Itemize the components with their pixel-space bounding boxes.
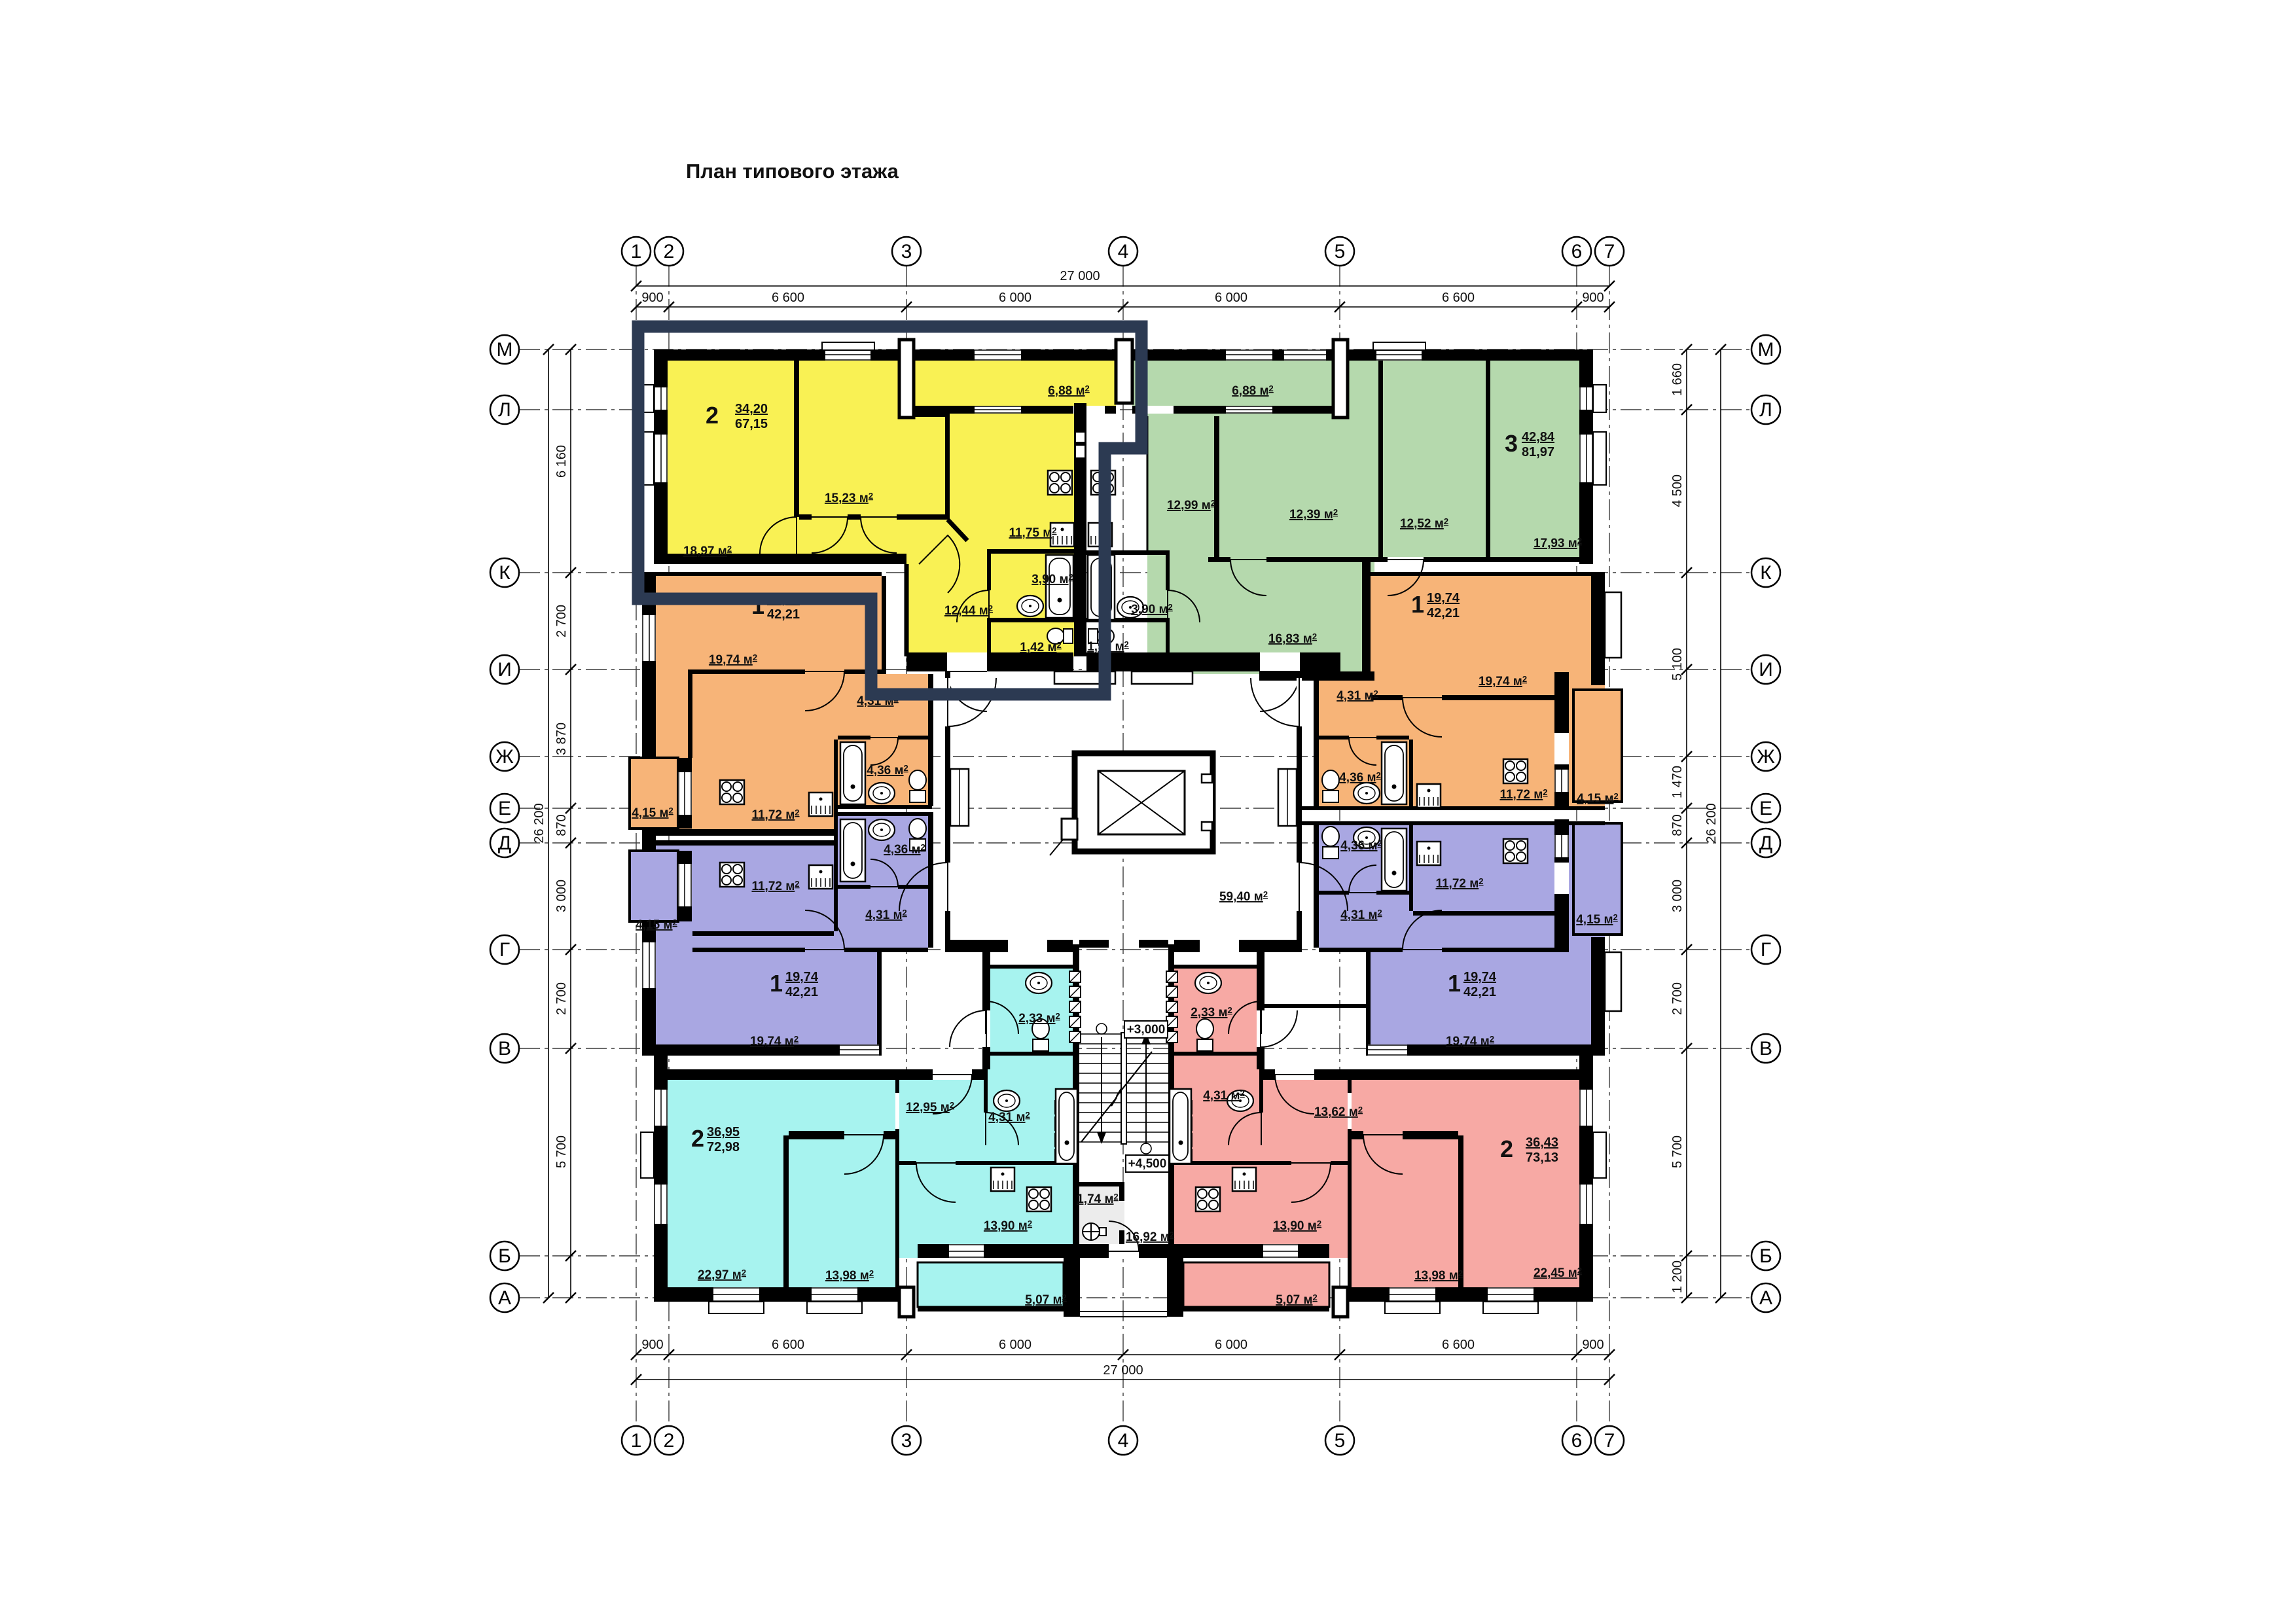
svg-text:Е: Е (1759, 798, 1772, 819)
svg-text:Г: Г (1761, 939, 1771, 961)
svg-text:4,31 м2: 4,31 м2 (865, 908, 907, 922)
svg-text:Д: Д (498, 832, 511, 854)
svg-text:5 700: 5 700 (1670, 1135, 1685, 1168)
svg-text:900: 900 (641, 1338, 663, 1352)
svg-text:2,33 м2: 2,33 м2 (1191, 1005, 1232, 1020)
svg-text:7: 7 (1604, 241, 1615, 262)
svg-text:6 000: 6 000 (999, 1338, 1031, 1352)
svg-text:3 000: 3 000 (554, 880, 569, 912)
svg-text:6 000: 6 000 (999, 291, 1031, 305)
svg-text:И: И (1759, 659, 1773, 681)
svg-text:1: 1 (770, 970, 783, 997)
svg-text:59,40 м2: 59,40 м2 (1219, 889, 1268, 904)
svg-text:19,74: 19,74 (1463, 970, 1497, 984)
svg-text:17,93 м2: 17,93 м2 (1534, 536, 1582, 550)
svg-text:6: 6 (1571, 241, 1583, 262)
svg-text:В: В (1759, 1038, 1772, 1060)
svg-text:Л: Л (498, 399, 511, 421)
svg-text:13,62 м2: 13,62 м2 (1314, 1105, 1363, 1119)
svg-text:27 000: 27 000 (1103, 1363, 1143, 1378)
svg-text:3 870: 3 870 (554, 722, 569, 755)
svg-text:Д: Д (1759, 832, 1772, 854)
svg-text:3: 3 (1505, 430, 1518, 457)
svg-text:34,20: 34,20 (735, 402, 768, 416)
svg-text:13,98 м2: 13,98 м2 (825, 1268, 874, 1283)
svg-text:2: 2 (664, 241, 675, 262)
svg-text:4,36 м2: 4,36 м2 (1340, 838, 1382, 853)
svg-text:12,95 м2: 12,95 м2 (906, 1100, 954, 1115)
svg-text:Л: Л (1759, 399, 1772, 421)
svg-text:900: 900 (1582, 1338, 1604, 1352)
svg-text:19,74 м2: 19,74 м2 (1446, 1034, 1494, 1048)
svg-text:Б: Б (1759, 1245, 1772, 1267)
svg-text:М: М (1758, 339, 1774, 361)
svg-text:2 700: 2 700 (554, 605, 569, 637)
svg-text:26 200: 26 200 (1704, 803, 1719, 843)
svg-text:2,33 м2: 2,33 м2 (1018, 1011, 1060, 1026)
svg-text:1: 1 (1411, 591, 1424, 618)
svg-text:42,21: 42,21 (785, 985, 818, 999)
svg-text:А: А (498, 1287, 511, 1309)
svg-text:16,92 м2: 16,92 м2 (1126, 1230, 1174, 1244)
svg-text:3,90 м2: 3,90 м2 (1131, 602, 1173, 616)
svg-text:42,84: 42,84 (1522, 430, 1555, 444)
svg-text:19,74 м2: 19,74 м2 (1479, 674, 1527, 688)
svg-text:Ж: Ж (1757, 746, 1775, 768)
svg-text:К: К (1760, 562, 1772, 584)
svg-text:12,52 м2: 12,52 м2 (1400, 516, 1448, 531)
svg-text:4,31 м2: 4,31 м2 (988, 1110, 1030, 1124)
svg-text:6 600: 6 600 (772, 291, 804, 305)
svg-text:13,90 м2: 13,90 м2 (1273, 1219, 1321, 1233)
svg-text:4,31 м2: 4,31 м2 (1203, 1088, 1245, 1103)
svg-text:6,88 м2: 6,88 м2 (1048, 383, 1090, 398)
svg-text:2: 2 (1500, 1135, 1513, 1162)
svg-text:11,72 м2: 11,72 м2 (1435, 876, 1483, 891)
svg-text:4,15 м2: 4,15 м2 (1576, 912, 1618, 927)
svg-text:19,74: 19,74 (1427, 591, 1460, 605)
svg-text:900: 900 (1582, 291, 1604, 305)
svg-text:3 000: 3 000 (1670, 880, 1685, 912)
svg-text:К: К (499, 562, 511, 584)
svg-text:11,72 м2: 11,72 м2 (751, 879, 799, 893)
svg-text:2: 2 (691, 1125, 704, 1152)
svg-text:6 160: 6 160 (554, 445, 569, 478)
svg-text:2: 2 (664, 1430, 675, 1452)
svg-text:1: 1 (631, 1430, 642, 1452)
svg-text:36,95: 36,95 (707, 1125, 740, 1139)
svg-text:42,21: 42,21 (1463, 985, 1496, 999)
svg-text:А: А (1759, 1287, 1772, 1309)
svg-text:Г: Г (499, 939, 510, 961)
svg-text:1 660: 1 660 (1670, 363, 1685, 396)
svg-text:Б: Б (498, 1245, 511, 1267)
svg-text:19,74: 19,74 (785, 970, 819, 984)
svg-text:4,36 м2: 4,36 м2 (884, 842, 925, 857)
svg-text:План типового этажа: План типового этажа (686, 160, 899, 183)
svg-text:12,39 м2: 12,39 м2 (1289, 507, 1338, 522)
svg-text:19,74 м2: 19,74 м2 (709, 652, 757, 667)
svg-text:6 000: 6 000 (1215, 291, 1247, 305)
svg-text:13,98 м2: 13,98 м2 (1414, 1268, 1463, 1283)
svg-text:1 470: 1 470 (1670, 766, 1685, 798)
svg-text:6 600: 6 600 (1442, 1338, 1475, 1352)
svg-text:6,88 м2: 6,88 м2 (1232, 383, 1274, 398)
svg-text:3: 3 (901, 1430, 912, 1452)
svg-text:5,07 м2: 5,07 м2 (1276, 1293, 1318, 1307)
svg-text:3: 3 (901, 241, 912, 262)
svg-text:72,98: 72,98 (707, 1140, 740, 1154)
svg-text:18,97 м2: 18,97 м2 (683, 544, 732, 558)
svg-text:1,42 м2: 1,42 м2 (1020, 640, 1062, 654)
svg-text:Е: Е (498, 798, 511, 819)
svg-text:4,15 м2: 4,15 м2 (1577, 791, 1619, 806)
svg-text:67,15: 67,15 (735, 417, 768, 431)
svg-text:В: В (498, 1038, 511, 1060)
svg-text:2: 2 (706, 402, 719, 429)
svg-text:11,72 м2: 11,72 м2 (1499, 787, 1547, 802)
svg-text:42,21: 42,21 (767, 607, 800, 622)
svg-text:2 700: 2 700 (1670, 982, 1685, 1015)
svg-text:5 700: 5 700 (554, 1135, 569, 1168)
svg-text:6 600: 6 600 (1442, 291, 1475, 305)
svg-text:1: 1 (1448, 970, 1461, 997)
svg-text:5 100: 5 100 (1670, 648, 1685, 681)
svg-text:16,83 м2: 16,83 м2 (1268, 632, 1317, 646)
svg-text:1: 1 (631, 241, 642, 262)
svg-text:4: 4 (1118, 1430, 1129, 1452)
svg-text:4,31 м2: 4,31 м2 (1336, 688, 1378, 703)
svg-text:М: М (497, 339, 513, 361)
svg-text:870: 870 (554, 814, 569, 836)
svg-text:6: 6 (1571, 1430, 1583, 1452)
svg-text:42,21: 42,21 (1427, 606, 1460, 620)
svg-text:12,99 м2: 12,99 м2 (1167, 498, 1215, 512)
svg-text:Ж: Ж (495, 746, 514, 768)
svg-text:36,43: 36,43 (1526, 1135, 1558, 1150)
svg-text:И: И (497, 659, 512, 681)
svg-text:6 600: 6 600 (772, 1338, 804, 1352)
svg-text:4 500: 4 500 (1670, 474, 1685, 507)
svg-text:5: 5 (1335, 1430, 1346, 1452)
svg-text:4,36 м2: 4,36 м2 (867, 763, 908, 777)
svg-text:5: 5 (1335, 241, 1346, 262)
svg-text:22,97 м2: 22,97 м2 (698, 1268, 746, 1282)
svg-text:6 000: 6 000 (1215, 1338, 1247, 1352)
svg-text:4,15 м2: 4,15 м2 (636, 918, 677, 932)
svg-text:4,36 м2: 4,36 м2 (1339, 770, 1381, 785)
svg-text:2 700: 2 700 (554, 982, 569, 1015)
svg-text:+3,000: +3,000 (1127, 1023, 1166, 1037)
svg-text:1,74 м2: 1,74 м2 (1077, 1192, 1119, 1206)
svg-text:3,90 м2: 3,90 м2 (1031, 572, 1073, 586)
svg-text:4,15 м2: 4,15 м2 (632, 806, 673, 820)
svg-text:15,23 м2: 15,23 м2 (825, 491, 873, 505)
svg-text:12,44 м2: 12,44 м2 (944, 603, 993, 618)
svg-text:19,74 м2: 19,74 м2 (750, 1034, 798, 1048)
svg-text:26 200: 26 200 (532, 803, 547, 843)
svg-text:81,97: 81,97 (1522, 445, 1554, 459)
svg-text:27 000: 27 000 (1060, 269, 1100, 283)
svg-text:22,45 м2: 22,45 м2 (1534, 1266, 1582, 1280)
svg-text:11,72 м2: 11,72 м2 (751, 808, 799, 822)
svg-text:870: 870 (1670, 814, 1685, 836)
svg-text:73,13: 73,13 (1526, 1150, 1558, 1165)
svg-text:4,31 м2: 4,31 м2 (1340, 908, 1382, 922)
svg-text:1 200: 1 200 (1670, 1260, 1685, 1293)
svg-text:4: 4 (1118, 241, 1129, 262)
svg-text:13,90 м2: 13,90 м2 (984, 1219, 1032, 1233)
svg-text:7: 7 (1604, 1430, 1615, 1452)
svg-text:900: 900 (641, 291, 663, 305)
svg-text:5,07 м2: 5,07 м2 (1025, 1293, 1067, 1307)
svg-text:11,75 м2: 11,75 м2 (1009, 526, 1056, 540)
svg-text:+4,500: +4,500 (1128, 1157, 1167, 1171)
